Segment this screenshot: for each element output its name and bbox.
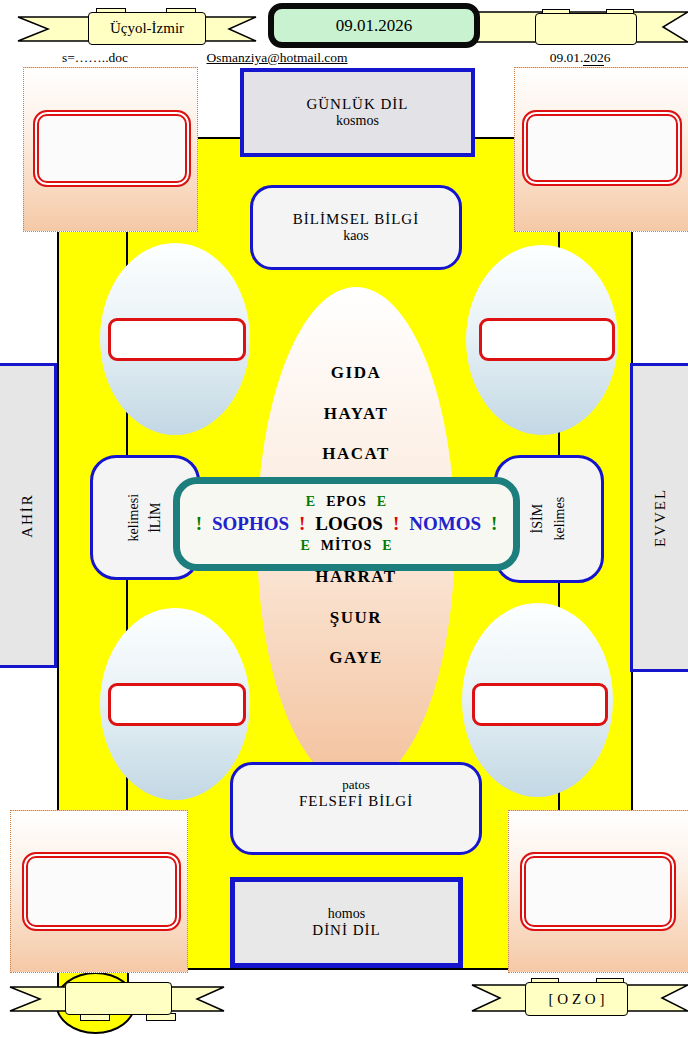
box-dini-dil: homos DİNİ DİL bbox=[230, 877, 463, 968]
gunluk-sub: kosmos bbox=[336, 113, 379, 129]
mitos-row: EMİTOSE bbox=[295, 538, 397, 554]
red-plate-bottom-right bbox=[520, 852, 676, 931]
token-sophos: SOPHOS bbox=[212, 513, 289, 534]
evvel-label: EVVEL bbox=[652, 488, 669, 547]
box-gunluk-dil: GÜNLÜK DİL kosmos bbox=[240, 68, 475, 157]
sophos-logos-nomos-row: !SOPHOS!LOGOS!NOMOS! bbox=[191, 513, 503, 535]
banner-label-bottom-left-empty bbox=[65, 982, 172, 1015]
left-box-line1: kelimesi bbox=[123, 494, 145, 541]
bar-evvel: EVVEL bbox=[630, 363, 688, 672]
banner-label-top-right-empty bbox=[535, 13, 637, 45]
right-box-line1: İSİM bbox=[527, 497, 549, 541]
red-frame-top-left bbox=[108, 318, 246, 361]
box-felsefi-bilgi: patos FELSEFİ BİLGİ bbox=[230, 762, 482, 855]
token-!: ! bbox=[299, 513, 305, 534]
red-plate-top-left bbox=[33, 110, 191, 187]
word-hacat: HACAT bbox=[257, 444, 455, 464]
token-e: E bbox=[300, 538, 310, 553]
left-box-line2: İLİM bbox=[145, 494, 167, 541]
red-frame-top-right bbox=[479, 318, 615, 361]
red-frame-bottom-right bbox=[472, 683, 608, 726]
red-frame-bottom-left bbox=[108, 683, 246, 726]
bilimsel-title: BİLİMSEL BİLGİ bbox=[293, 211, 419, 228]
red-plate-bottom-left bbox=[22, 852, 181, 931]
bilimsel-sub: kaos bbox=[343, 228, 369, 244]
token-!: ! bbox=[196, 513, 202, 534]
token-epos: EPOS bbox=[326, 494, 367, 509]
date-right-underlined: 202 bbox=[583, 50, 603, 66]
ahir-label: AHİR bbox=[18, 493, 35, 538]
dini-sub: homos bbox=[328, 906, 365, 922]
token-logos: LOGOS bbox=[315, 513, 383, 534]
diagram-page: GIDA HAYAT HACAT HARRAT ŞUUR GAYE GÜNLÜK… bbox=[0, 0, 688, 1038]
email-link[interactable]: Osmanziya@hotmail.com bbox=[197, 50, 357, 66]
red-plate-top-right bbox=[522, 110, 682, 186]
word-gida: GIDA bbox=[257, 363, 455, 383]
banner-label-ozo: [ O Z O ] bbox=[525, 982, 628, 1016]
word-hayat: HAYAT bbox=[257, 404, 455, 424]
bar-ahir: AHİR bbox=[0, 363, 57, 668]
date-plaque: 09.01.2026 bbox=[268, 3, 480, 48]
teal-center-box: EEPOSE !SOPHOS!LOGOS!NOMOS! EMİTOSE bbox=[173, 477, 520, 571]
felsefi-sub: patos bbox=[342, 777, 369, 793]
token-e: E bbox=[306, 494, 316, 509]
date-right-suffix: 6 bbox=[604, 50, 611, 65]
token-!: ! bbox=[491, 513, 497, 534]
token-nomos: NOMOS bbox=[409, 513, 481, 534]
dini-title: DİNİ DİL bbox=[312, 922, 380, 939]
felsefi-title: FELSEFİ BİLGİ bbox=[299, 793, 413, 810]
right-box-line2: kelimes bbox=[549, 497, 571, 541]
gunluk-title: GÜNLÜK DİL bbox=[306, 96, 408, 113]
word-gaye: GAYE bbox=[257, 648, 455, 668]
token-e: E bbox=[377, 494, 387, 509]
banner-label-ucyol-izmir: Üçyol-İzmir bbox=[88, 12, 206, 45]
token-!: ! bbox=[393, 513, 399, 534]
box-bilimsel-bilgi: BİLİMSEL BİLGİ kaos bbox=[250, 185, 462, 270]
date-right-text: 09.01.2026 bbox=[538, 50, 622, 66]
epos-row: EEPOSE bbox=[301, 494, 392, 510]
date-right-prefix: 09.01. bbox=[550, 50, 584, 65]
date-plaque-text: 09.01.2026 bbox=[336, 16, 413, 36]
word-suur: ŞUUR bbox=[257, 608, 455, 628]
doc-ref-text: s=……..doc bbox=[35, 50, 155, 66]
token-mi̇tos: MİTOS bbox=[321, 538, 372, 553]
token-e: E bbox=[382, 538, 392, 553]
